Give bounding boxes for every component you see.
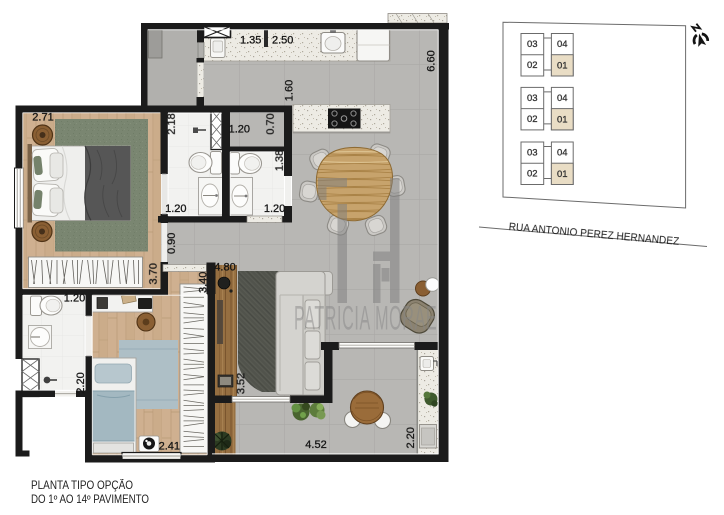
svg-text:01: 01 [557, 169, 568, 180]
svg-text:01: 01 [557, 61, 568, 72]
svg-text:02: 02 [527, 60, 538, 71]
svg-text:1.20: 1.20 [64, 292, 85, 304]
svg-text:04: 04 [557, 148, 568, 159]
svg-text:0.70: 0.70 [265, 113, 277, 134]
svg-text:6.60: 6.60 [426, 50, 438, 71]
svg-text:2.18: 2.18 [166, 113, 178, 134]
svg-text:04: 04 [557, 93, 568, 104]
svg-text:4.52: 4.52 [305, 439, 326, 451]
svg-text:1.60: 1.60 [284, 80, 296, 101]
svg-text:2.41: 2.41 [159, 440, 180, 452]
svg-text:4.80: 4.80 [214, 261, 235, 273]
svg-text:03: 03 [527, 148, 538, 159]
svg-text:3.70: 3.70 [148, 263, 160, 284]
svg-text:1.20: 1.20 [229, 124, 250, 136]
svg-text:PLANTA TIPO OPÇÃO: PLANTA TIPO OPÇÃO [31, 479, 133, 492]
svg-text:DO 1º AO 14º PAVIMENTO: DO 1º AO 14º PAVIMENTO [31, 494, 149, 506]
svg-text:3.52: 3.52 [235, 373, 247, 394]
svg-text:2.71: 2.71 [32, 112, 53, 124]
svg-text:1.38: 1.38 [274, 150, 286, 171]
svg-text:03: 03 [527, 39, 538, 50]
svg-text:1.20: 1.20 [264, 203, 285, 215]
svg-text:1.20: 1.20 [165, 203, 186, 215]
svg-text:2.20: 2.20 [75, 372, 87, 393]
svg-text:01: 01 [557, 114, 568, 125]
svg-text:02: 02 [527, 114, 538, 125]
svg-text:3.40: 3.40 [197, 272, 209, 293]
svg-text:03: 03 [527, 93, 538, 104]
svg-text:1.35: 1.35 [240, 34, 261, 46]
svg-text:0.90: 0.90 [166, 233, 178, 254]
svg-text:PATRICIA MORAES: PATRICIA MORAES [294, 299, 449, 337]
svg-text:04: 04 [557, 39, 568, 50]
svg-text:02: 02 [527, 169, 538, 180]
svg-text:2.20: 2.20 [405, 427, 417, 448]
svg-text:2.50: 2.50 [272, 34, 293, 46]
